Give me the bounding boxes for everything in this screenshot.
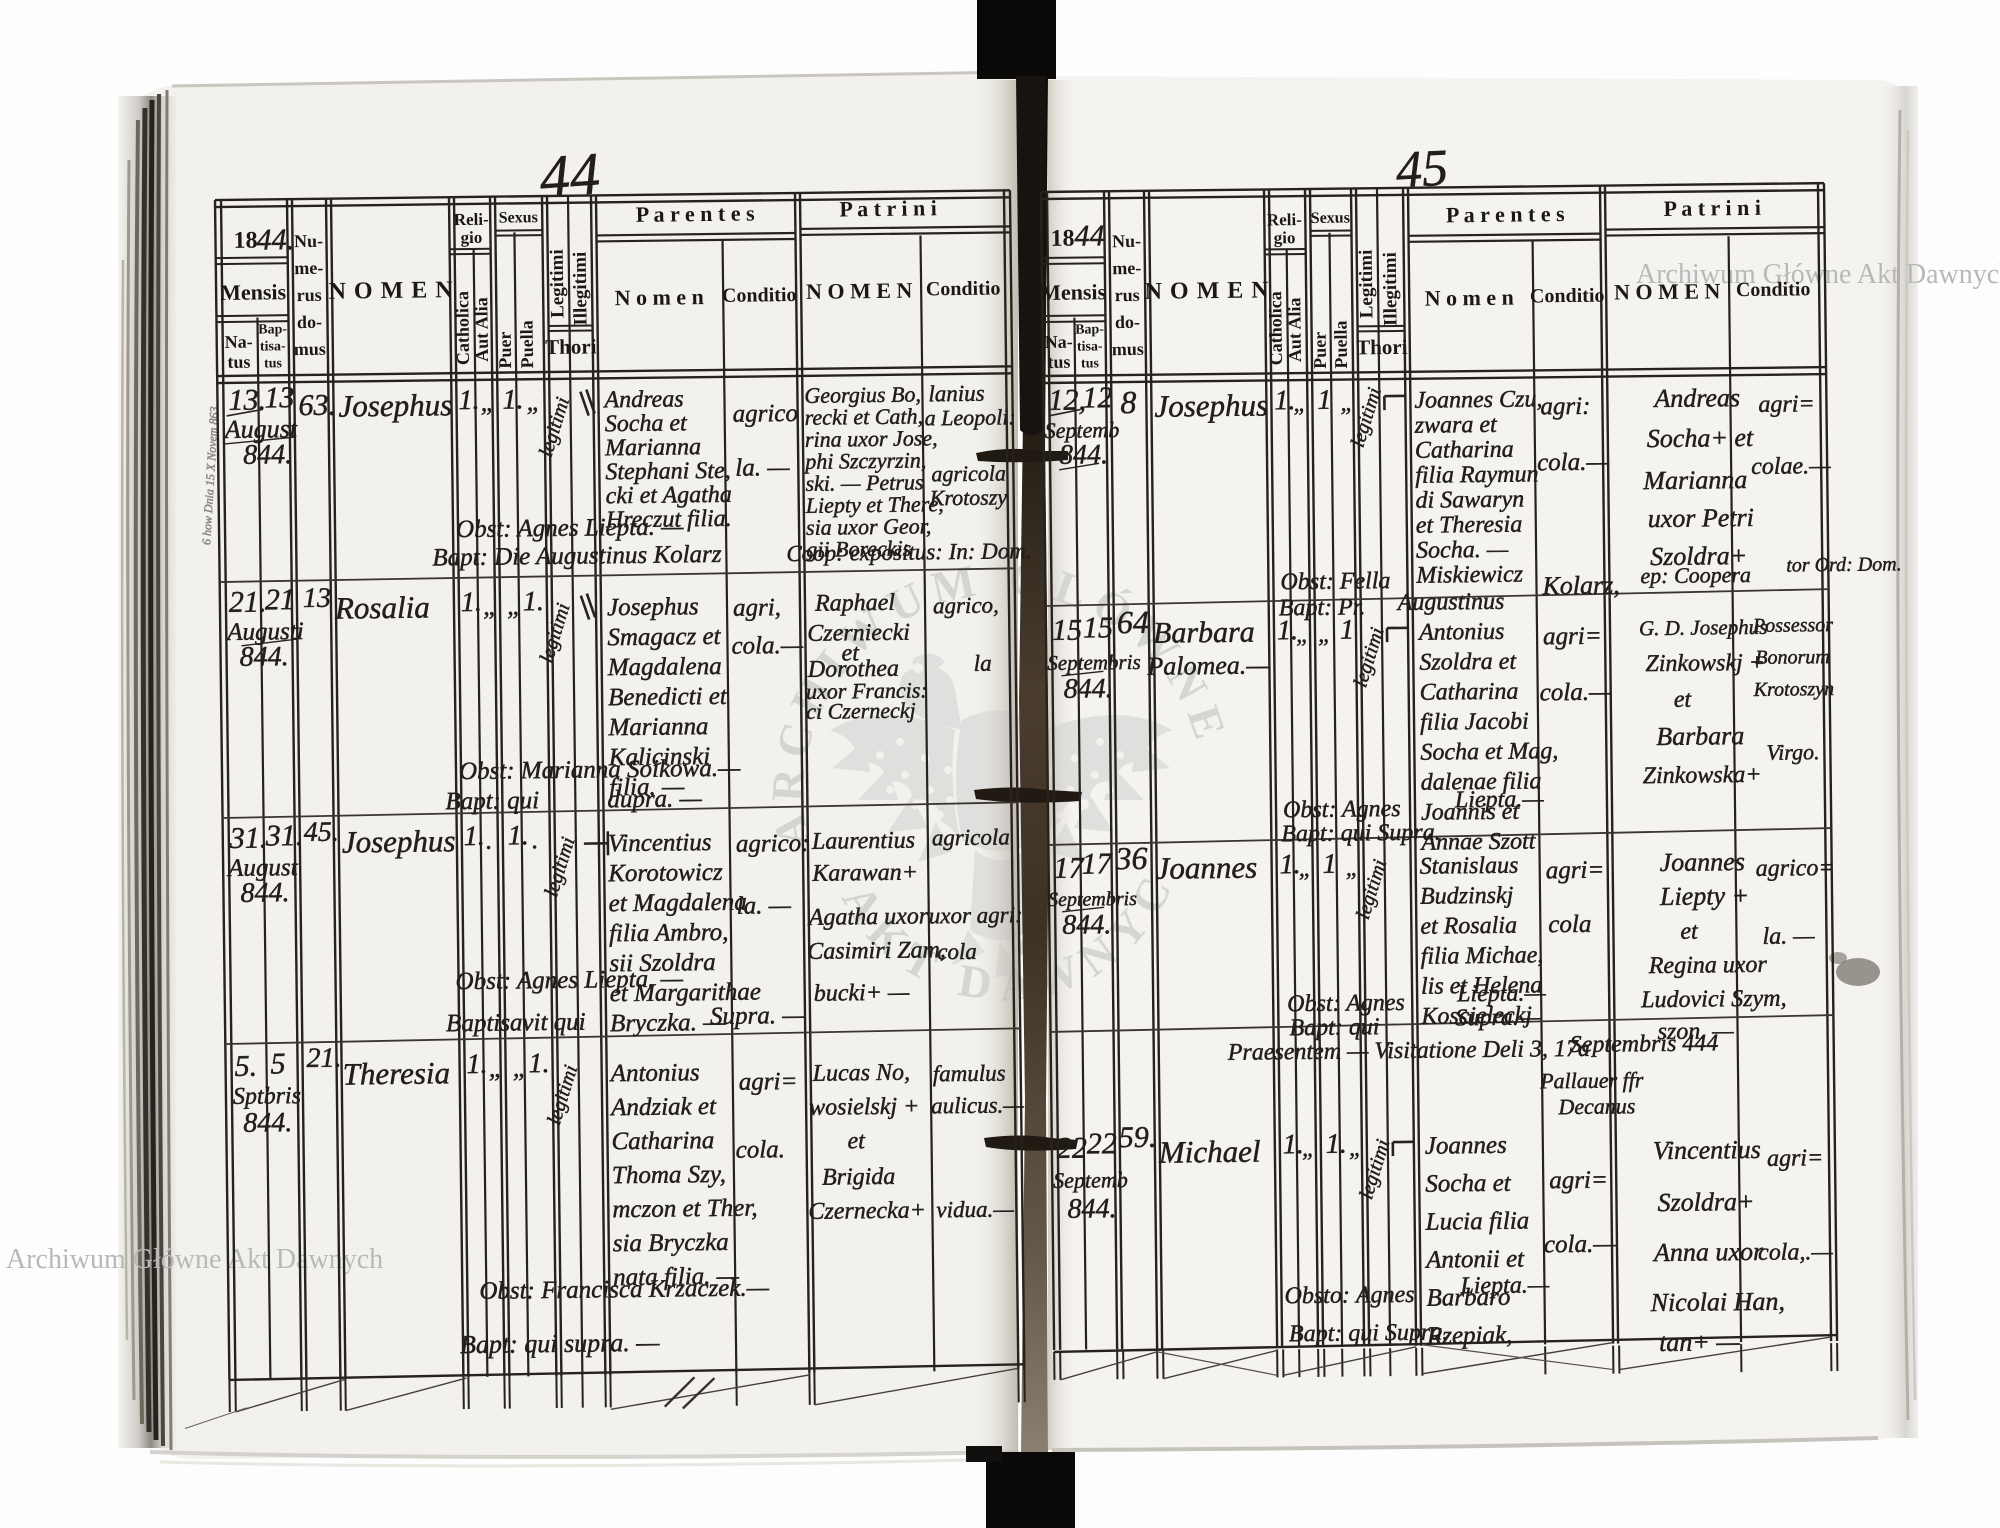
svg-text:lanius: lanius xyxy=(928,381,985,407)
svg-text:Obst: Marianna Soikowa.—: Obst: Marianna Soikowa.— xyxy=(459,755,741,785)
svg-text:Thoma Szy,: Thoma Szy, xyxy=(612,1161,726,1189)
svg-text:agri:: agri: xyxy=(1540,393,1590,421)
svg-text:G. D. Josephus: G. D. Josephus xyxy=(1639,615,1768,640)
svg-text:tus: tus xyxy=(1081,356,1100,371)
svg-text:Krotoszy: Krotoszy xyxy=(929,484,1008,510)
svg-text:Sexus: Sexus xyxy=(499,209,538,226)
svg-text:Antonius: Antonius xyxy=(609,1059,700,1087)
svg-text:mus: mus xyxy=(1112,339,1144,359)
svg-text:.: . xyxy=(532,825,539,854)
svg-text:dupra. —: dupra. — xyxy=(607,785,703,813)
svg-text:famulus: famulus xyxy=(933,1060,1006,1086)
svg-text:cola.—: cola.— xyxy=(1537,449,1610,477)
svg-text:Andziak et: Andziak et xyxy=(609,1093,717,1121)
svg-text:Reli-: Reli- xyxy=(1267,210,1302,229)
svg-text:„: „ xyxy=(483,592,498,621)
svg-text:Czernecka+: Czernecka+ xyxy=(808,1197,926,1224)
svg-text:Catholica: Catholica xyxy=(452,291,473,365)
svg-text:cola: cola xyxy=(937,939,977,964)
svg-text:Archiwum Główne Akt Dawnych: Archiwum Główne Akt Dawnych xyxy=(6,1244,383,1275)
svg-text:Kolarz,: Kolarz, xyxy=(1541,570,1620,600)
svg-text:Bap-: Bap- xyxy=(1075,322,1104,337)
svg-text:844.: 844. xyxy=(243,439,292,471)
svg-text:1.: 1. xyxy=(528,1048,549,1079)
svg-text:31.: 31. xyxy=(229,821,268,854)
svg-text:et Theresia: et Theresia xyxy=(1416,512,1523,539)
svg-text:Augustinus: Augustinus xyxy=(1396,589,1505,616)
svg-text:et Magdalena: et Magdalena xyxy=(608,889,746,918)
svg-text:1.: 1. xyxy=(1283,1129,1304,1160)
svg-text:Bapt: Die Augustinus Kolarz: Bapt: Die Augustinus Kolarz xyxy=(432,541,722,572)
svg-text:aulicus.—: aulicus.— xyxy=(931,1092,1024,1118)
svg-text:Puer: Puer xyxy=(1310,332,1330,369)
svg-text:Sptbris: Sptbris xyxy=(233,1083,301,1110)
svg-text:cola.—: cola.— xyxy=(731,632,804,660)
svg-text:Liepta.—: Liepta.— xyxy=(1454,786,1545,813)
svg-text:tus: tus xyxy=(1047,352,1070,372)
svg-text:15: 15 xyxy=(1052,614,1082,647)
svg-text:„: „ xyxy=(480,388,495,417)
svg-text:36: 36 xyxy=(1114,840,1147,876)
svg-text:15: 15 xyxy=(1083,611,1113,644)
svg-text:P a r e n t e s: P a r e n t e s xyxy=(1446,201,1565,227)
svg-text:a Leopoli:: a Leopoli: xyxy=(925,404,1016,430)
svg-text:agrico=: agrico= xyxy=(1756,855,1835,882)
svg-text:Conditio: Conditio xyxy=(926,277,1001,300)
svg-text:45.: 45. xyxy=(304,817,339,848)
svg-text:13: 13 xyxy=(303,583,331,614)
svg-text:mczon et Ther,: mczon et Ther, xyxy=(612,1195,757,1224)
svg-text:me-: me- xyxy=(294,258,323,278)
svg-text:cola,.—: cola,.— xyxy=(1758,1239,1834,1266)
svg-text:agri=: agri= xyxy=(1767,1145,1823,1172)
svg-text:ci Czerneckj: ci Czerneckj xyxy=(806,698,916,724)
svg-text:44.: 44. xyxy=(256,223,294,256)
svg-text:gii Boreckis: gii Boreckis xyxy=(806,536,911,562)
svg-text:N O M E N: N O M E N xyxy=(1614,278,1721,304)
svg-text:filia Jacobi: filia Jacobi xyxy=(1420,709,1529,736)
svg-text:filia Michae,: filia Michae, xyxy=(1421,942,1544,969)
svg-text:la. —: la. — xyxy=(1762,923,1815,950)
svg-text:agrico,: agrico, xyxy=(933,593,999,619)
svg-text:844.: 844. xyxy=(1067,1193,1116,1225)
svg-text:cola.—: cola.— xyxy=(1540,679,1613,707)
svg-text:„: „ xyxy=(512,1053,527,1082)
svg-text:rus: rus xyxy=(297,285,322,305)
svg-text:Catharina: Catharina xyxy=(1420,679,1519,706)
svg-text:1.: 1. xyxy=(464,821,485,852)
svg-text:Raphael: Raphael xyxy=(814,590,896,617)
svg-text:44: 44 xyxy=(1074,219,1104,252)
svg-text:Ludovici Szym,: Ludovici Szym, xyxy=(1640,986,1787,1014)
svg-text:Karawan+: Karawan+ xyxy=(811,860,918,887)
svg-text:8: 8 xyxy=(1120,384,1136,420)
svg-text:Illegitimi: Illegitimi xyxy=(1380,252,1402,326)
svg-text:Legitimi: Legitimi xyxy=(1356,250,1378,319)
svg-text:tan+ —: tan+ — xyxy=(1659,1327,1741,1357)
svg-text:Socha et: Socha et xyxy=(1425,1170,1512,1198)
svg-text:Conditio: Conditio xyxy=(722,284,797,307)
svg-text:„: „ xyxy=(1349,1135,1363,1161)
svg-text:agri=: agri= xyxy=(1543,623,1602,651)
svg-text:Josephus: Josephus xyxy=(342,823,456,859)
svg-text:Mensis: Mensis xyxy=(1040,279,1107,305)
svg-text:do-: do- xyxy=(297,312,322,332)
svg-text:63.: 63. xyxy=(298,389,336,422)
svg-text:Szoldra et: Szoldra et xyxy=(1419,649,1517,676)
svg-text:Conditio: Conditio xyxy=(1530,285,1605,308)
svg-text:1.: 1. xyxy=(523,586,544,617)
svg-text:1: 1 xyxy=(1317,385,1331,416)
svg-text:agricola: agricola xyxy=(932,824,1010,850)
svg-text:Theresia: Theresia xyxy=(342,1055,450,1091)
svg-text:la. —: la. — xyxy=(737,892,792,920)
svg-text:Supra.—: Supra.— xyxy=(1455,1004,1541,1031)
svg-text:N o m e n: N o m e n xyxy=(614,284,704,310)
svg-text:Magdalena: Magdalena xyxy=(607,653,722,681)
svg-text:1.: 1. xyxy=(1274,385,1295,416)
svg-text:18: 18 xyxy=(1050,226,1074,252)
svg-text:Septembris 444: Septembris 444 xyxy=(1570,1030,1719,1058)
svg-text:Catholica: Catholica xyxy=(1265,291,1286,365)
svg-text:Joannes Czu,: Joannes Czu, xyxy=(1414,386,1542,413)
svg-text:Anna uxor: Anna uxor xyxy=(1652,1237,1764,1267)
svg-text:P a r e n t e s: P a r e n t e s xyxy=(636,200,755,226)
svg-text:844.: 844. xyxy=(240,877,289,909)
svg-text:Puella: Puella xyxy=(516,320,537,368)
svg-text:Marianna: Marianna xyxy=(607,713,708,741)
svg-text:1.: 1. xyxy=(1277,615,1298,646)
svg-text:Antonius: Antonius xyxy=(1417,619,1505,646)
svg-text:do-: do- xyxy=(1115,312,1140,332)
svg-text:et Rosalia: et Rosalia xyxy=(1420,913,1517,940)
svg-text:Bapt: qui: Bapt: qui xyxy=(1289,1014,1379,1041)
svg-text:agri,: agri, xyxy=(733,594,781,622)
svg-text:Baptisavit qui: Baptisavit qui xyxy=(446,1009,586,1038)
svg-text:Antonii et: Antonii et xyxy=(1424,1246,1525,1274)
svg-text:Supra. —: Supra. — xyxy=(710,1002,806,1030)
svg-text:me-: me- xyxy=(1112,258,1141,278)
svg-text:Aut Alia: Aut Alia xyxy=(471,297,492,362)
svg-text:et: et xyxy=(1680,919,1699,945)
svg-text:Pallauer ffr: Pallauer ffr xyxy=(1539,1067,1644,1093)
svg-text:N O M E N: N O M E N xyxy=(328,277,453,305)
svg-text:uxor agri:: uxor agri: xyxy=(929,902,1023,928)
svg-text:agrico:: agrico: xyxy=(736,830,810,858)
svg-text:Palomea.—: Palomea.— xyxy=(1146,650,1270,680)
svg-text:Septemb: Septemb xyxy=(1053,1167,1128,1193)
svg-text:Joannes: Joannes xyxy=(1659,847,1745,877)
svg-text:Bapt: qui supra. —: Bapt: qui supra. — xyxy=(460,1328,661,1359)
svg-text:Obst: Agnes Liepta. —: Obst: Agnes Liepta. — xyxy=(455,965,683,995)
svg-text:„: „ xyxy=(507,591,522,620)
svg-text:zwara et: zwara et xyxy=(1414,412,1499,439)
svg-text:wosielskj +: wosielskj + xyxy=(809,1094,920,1121)
svg-text:Bap-: Bap- xyxy=(258,322,287,337)
svg-text:agri=: agri= xyxy=(739,1068,798,1096)
svg-text:agri=: agri= xyxy=(1546,857,1605,885)
svg-text:et: et xyxy=(847,1128,866,1154)
svg-text:Obst: Fella: Obst: Fella xyxy=(1280,568,1390,595)
svg-text:1.: 1. xyxy=(1279,849,1300,880)
svg-text:Sexus: Sexus xyxy=(1311,209,1350,226)
svg-text:Lucia filia: Lucia filia xyxy=(1425,1208,1530,1236)
svg-text:tisa-: tisa- xyxy=(260,339,286,354)
svg-text:mus: mus xyxy=(294,339,326,359)
svg-text:Mensis: Mensis xyxy=(220,279,287,305)
svg-text:gio: gio xyxy=(1274,228,1296,247)
svg-text:Illegitimi: Illegitimi xyxy=(570,252,592,326)
svg-text:5.: 5. xyxy=(234,1050,257,1083)
svg-text:gio: gio xyxy=(460,228,482,247)
svg-text:Decanus: Decanus xyxy=(1557,1093,1635,1119)
svg-text:Josephus: Josephus xyxy=(607,593,699,621)
svg-text:Benedicti et: Benedicti et xyxy=(608,683,728,711)
svg-text:Bonorum: Bonorum xyxy=(1755,646,1830,669)
svg-text:Andreas: Andreas xyxy=(1652,383,1740,413)
svg-text:filia Raymun: filia Raymun xyxy=(1415,461,1539,488)
svg-text:uxor Petri: uxor Petri xyxy=(1648,503,1754,533)
svg-text:Brigida: Brigida xyxy=(822,1164,896,1191)
svg-text:Socha+ et: Socha+ et xyxy=(1647,423,1754,453)
svg-text:21: 21 xyxy=(265,583,295,616)
svg-text:cola: cola xyxy=(1548,911,1591,938)
svg-text:Septembris: Septembris xyxy=(1047,650,1141,675)
svg-text:Na-: Na- xyxy=(225,332,253,352)
svg-text:Agatha uxor: Agatha uxor xyxy=(807,903,929,930)
svg-text:„: „ xyxy=(1293,391,1307,417)
svg-text:Obst: Agnes: Obst: Agnes xyxy=(1287,990,1405,1017)
svg-text:Andreas: Andreas xyxy=(602,386,683,413)
svg-text:.: . xyxy=(486,826,493,855)
svg-text:cola.: cola. xyxy=(735,1136,785,1164)
svg-text:vidua.—: vidua.— xyxy=(936,1196,1014,1222)
svg-text:59.: 59. xyxy=(1119,1121,1157,1154)
svg-text:Rosalia: Rosalia xyxy=(334,589,430,625)
svg-text:„: „ xyxy=(1340,390,1354,416)
svg-text:Nicolai Han,: Nicolai Han, xyxy=(1649,1287,1785,1318)
svg-text:Socha et Mag,: Socha et Mag, xyxy=(1420,738,1558,766)
svg-text:Reli-: Reli- xyxy=(454,210,489,229)
svg-text:la: la xyxy=(974,651,992,676)
svg-text:Vincentius: Vincentius xyxy=(1653,1135,1761,1165)
svg-text:Josephus: Josephus xyxy=(338,387,452,423)
svg-text:31.: 31. xyxy=(265,819,304,852)
svg-text:Nu-: Nu- xyxy=(294,231,323,251)
svg-text:tisa-: tisa- xyxy=(1077,339,1103,354)
svg-text:Laurentius: Laurentius xyxy=(811,828,915,855)
svg-text:Bryczka. —: Bryczka. — xyxy=(610,1009,726,1037)
svg-text:Praesentem — Visitatione Deli: Praesentem — Visitatione Deli 3, 17a xyxy=(1227,1036,1590,1066)
svg-text:Obst: Francisca Krzaczek.—: Obst: Francisca Krzaczek.— xyxy=(479,1274,770,1305)
svg-text:Septembris: Septembris xyxy=(1048,888,1137,911)
svg-text:Thori: Thori xyxy=(545,334,597,359)
svg-text:N O M E N: N O M E N xyxy=(806,278,913,304)
svg-text:et: et xyxy=(1674,687,1693,713)
svg-text:agri=: agri= xyxy=(1549,1167,1608,1195)
svg-text:Miskiewicz: Miskiewicz xyxy=(1415,562,1524,589)
svg-text:Catharina: Catharina xyxy=(611,1127,714,1155)
svg-text:agricola: agricola xyxy=(931,460,1006,486)
svg-text:Aut Alia: Aut Alia xyxy=(1284,298,1305,363)
svg-text:Liepta.—: Liepta.— xyxy=(1456,980,1547,1007)
svg-text:1.: 1. xyxy=(466,1049,487,1080)
svg-text:844.: 844. xyxy=(1063,673,1112,705)
svg-text:„: „ xyxy=(1346,855,1360,881)
svg-text:di Sawaryn: di Sawaryn xyxy=(1415,487,1524,514)
svg-text:Obstо: Agnes: Obstо: Agnes xyxy=(1284,1282,1414,1309)
svg-text:Joannes: Joannes xyxy=(1425,1132,1507,1160)
svg-text:22: 22 xyxy=(1087,1127,1117,1160)
svg-text:22: 22 xyxy=(1057,1132,1087,1165)
svg-text:844.: 844. xyxy=(1062,909,1111,941)
svg-text:18: 18 xyxy=(233,228,257,254)
svg-text:Korotowicz: Korotowicz xyxy=(607,859,723,887)
svg-text:„: „ xyxy=(1299,856,1313,882)
svg-text:„: „ xyxy=(1296,622,1310,648)
svg-text:Liepta.—: Liepta.— xyxy=(1459,1272,1550,1299)
svg-text:Obst: Agnes Liepta. —: Obst: Agnes Liepta. — xyxy=(456,513,684,543)
svg-text:Bapt: qui Supra.: Bapt: qui Supra. xyxy=(1289,1319,1449,1347)
svg-text:12: 12 xyxy=(1082,381,1112,414)
svg-text:1.: 1. xyxy=(458,385,479,416)
svg-text:17: 17 xyxy=(1081,847,1113,880)
svg-text:Szoldra+: Szoldra+ xyxy=(1657,1187,1754,1217)
svg-text:Conditio: Conditio xyxy=(1736,278,1811,301)
svg-text:Lucas No,: Lucas No, xyxy=(812,1060,911,1087)
svg-text:844.: 844. xyxy=(239,641,288,673)
svg-text:Nu-: Nu- xyxy=(1112,231,1141,251)
svg-text:1.: 1. xyxy=(461,587,482,618)
svg-text:agrico: agrico xyxy=(732,400,798,428)
svg-text:Socha et: Socha et xyxy=(605,410,689,437)
svg-text:64: 64 xyxy=(1117,604,1149,640)
svg-text:Joannes: Joannes xyxy=(1155,850,1257,886)
svg-text:colaе.—: colaе.— xyxy=(1751,453,1831,480)
svg-text:sia Bryczka: sia Bryczka xyxy=(613,1229,729,1257)
svg-text:844.: 844. xyxy=(243,1107,292,1139)
svg-text:1: 1 xyxy=(1322,849,1336,880)
svg-text:Stanislaus: Stanislaus xyxy=(1420,853,1519,880)
svg-text:Barbara: Barbara xyxy=(1153,616,1255,650)
svg-text:Barbara: Barbara xyxy=(1656,721,1744,751)
svg-text:filia Ambro,: filia Ambro, xyxy=(609,919,729,947)
svg-text:Liepty +: Liepty + xyxy=(1659,881,1749,911)
svg-text:Puella: Puella xyxy=(1330,320,1351,368)
svg-text:Thori: Thori xyxy=(1356,335,1408,360)
svg-text:21.: 21. xyxy=(306,1043,341,1074)
svg-text:Vincentius: Vincentius xyxy=(608,829,712,857)
svg-text:tus: tus xyxy=(264,356,283,371)
svg-text:N O M E N: N O M E N xyxy=(1144,277,1269,304)
svg-text:Smagacz et: Smagacz et xyxy=(607,623,722,651)
svg-text:13: 13 xyxy=(264,381,294,414)
svg-text:„: „ xyxy=(488,1054,503,1083)
svg-text:5: 5 xyxy=(270,1047,285,1080)
svg-text:Socha. —: Socha. — xyxy=(1416,537,1509,564)
svg-text:1: 1 xyxy=(1340,614,1354,645)
svg-text:„: „ xyxy=(1302,1136,1316,1162)
svg-text:la. —: la. — xyxy=(735,454,790,482)
svg-text:Legitimi: Legitimi xyxy=(547,249,569,318)
svg-text:Michael: Michael xyxy=(1158,1134,1261,1170)
svg-text:P a t r i n i: P a t r i n i xyxy=(839,195,937,221)
svg-text:Krotoszyn: Krotoszyn xyxy=(1753,678,1835,701)
svg-text:tor Ord: Dom.: tor Ord: Dom. xyxy=(1786,553,1902,576)
svg-text:Virgo.: Virgo. xyxy=(1766,739,1819,765)
svg-text:„: „ xyxy=(1318,622,1332,648)
svg-text:tus: tus xyxy=(227,352,250,372)
svg-text:Regina uxor: Regina uxor xyxy=(1648,952,1768,979)
svg-text:rus: rus xyxy=(1115,285,1140,305)
svg-text:Na-: Na- xyxy=(1045,332,1073,352)
svg-text:P a t r i n i: P a t r i n i xyxy=(1663,195,1761,221)
svg-text:Bapt: qui Supra.: Bapt: qui Supra. xyxy=(1281,820,1441,848)
svg-text:1.: 1. xyxy=(508,820,529,851)
svg-text:Marianna: Marianna xyxy=(1642,465,1747,495)
svg-text:N o m e n: N o m e n xyxy=(1424,285,1513,311)
svg-text:„: „ xyxy=(526,387,541,416)
svg-text:Josephus: Josephus xyxy=(1154,387,1268,423)
svg-text:Bapt: qui: Bapt: qui xyxy=(445,787,539,815)
svg-text:Catharina: Catharina xyxy=(1415,437,1514,464)
svg-text:ep: Coopera: ep: Coopera xyxy=(1640,562,1751,588)
svg-text:Puer: Puer xyxy=(495,331,515,368)
svg-text:Casimiri Zam,: Casimiri Zam, xyxy=(807,937,946,965)
svg-text:Zinkowskj +: Zinkowskj + xyxy=(1645,650,1765,677)
svg-text:agri=: agri= xyxy=(1758,391,1814,418)
svg-text:21.: 21. xyxy=(229,585,267,618)
svg-text:Marianna: Marianna xyxy=(604,434,701,461)
svg-text:Zinkowska+: Zinkowska+ xyxy=(1643,762,1762,789)
svg-text:1.: 1. xyxy=(1326,1129,1347,1160)
svg-text:Possessor: Possessor xyxy=(1752,614,1833,637)
svg-text:Budzinskj: Budzinskj xyxy=(1420,883,1514,910)
svg-text:cola.—: cola.— xyxy=(1544,1231,1617,1259)
svg-text:1.: 1. xyxy=(502,384,523,415)
svg-text:bucki+ —: bucki+ — xyxy=(814,980,910,1007)
